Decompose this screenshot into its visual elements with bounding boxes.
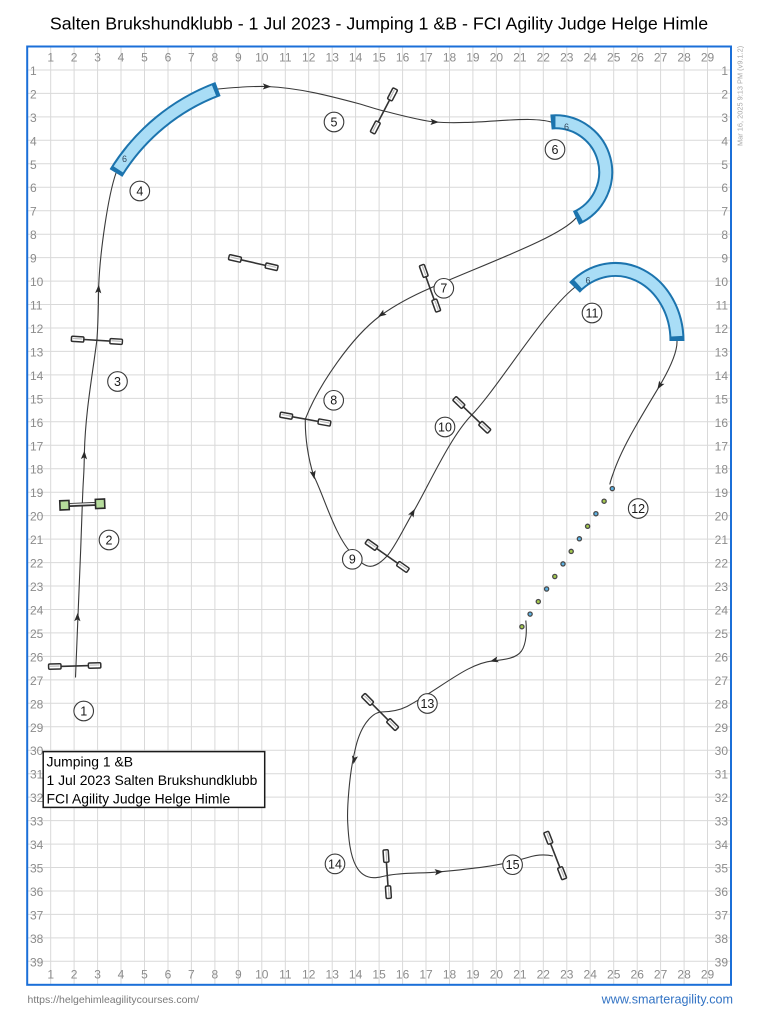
svg-text:4: 4	[721, 134, 728, 148]
svg-text:25: 25	[715, 627, 729, 641]
svg-text:27: 27	[654, 968, 668, 982]
svg-text:19: 19	[466, 51, 480, 65]
svg-text:20: 20	[715, 510, 729, 524]
svg-text:2: 2	[30, 87, 37, 101]
svg-text:23: 23	[715, 580, 729, 594]
svg-text:28: 28	[677, 51, 691, 65]
svg-text:1: 1	[47, 51, 54, 65]
svg-text:17: 17	[419, 968, 433, 982]
svg-text:10: 10	[255, 51, 269, 65]
svg-text:6: 6	[122, 154, 127, 164]
svg-text:18: 18	[715, 463, 729, 477]
svg-text:7: 7	[721, 205, 728, 219]
svg-text:14: 14	[349, 51, 363, 65]
svg-text:35: 35	[30, 862, 44, 876]
svg-text:3: 3	[94, 968, 101, 982]
svg-text:4: 4	[30, 134, 37, 148]
svg-text:1: 1	[80, 704, 87, 718]
svg-text:27: 27	[30, 674, 44, 688]
svg-text:31: 31	[715, 768, 729, 782]
svg-text:3: 3	[30, 111, 37, 125]
svg-text:7: 7	[440, 282, 447, 296]
svg-text:21: 21	[513, 51, 527, 65]
svg-text:3: 3	[114, 375, 121, 389]
svg-text:6: 6	[564, 122, 569, 132]
svg-text:20: 20	[490, 51, 504, 65]
svg-text:Salten Brukshundklubb - 1 Jul: Salten Brukshundklubb - 1 Jul 2023 - Jum…	[50, 14, 708, 34]
svg-text:5: 5	[141, 51, 148, 65]
svg-text:4: 4	[118, 51, 125, 65]
svg-text:6: 6	[721, 181, 728, 195]
svg-text:5: 5	[331, 115, 338, 129]
svg-text:14: 14	[715, 369, 729, 383]
svg-text:21: 21	[30, 533, 44, 547]
svg-text:26: 26	[631, 51, 645, 65]
svg-text:9: 9	[721, 252, 728, 266]
svg-text:18: 18	[30, 463, 44, 477]
svg-text:18: 18	[443, 968, 457, 982]
svg-text:15: 15	[715, 392, 729, 406]
svg-text:26: 26	[715, 650, 729, 664]
svg-text:8: 8	[330, 394, 337, 408]
svg-text:30: 30	[30, 744, 44, 758]
svg-text:www.smarteragility.com: www.smarteragility.com	[601, 993, 733, 1007]
svg-text:17: 17	[419, 51, 433, 65]
svg-text:9: 9	[235, 51, 242, 65]
svg-text:17: 17	[30, 439, 44, 453]
svg-text:23: 23	[560, 968, 574, 982]
svg-text:21: 21	[513, 968, 527, 982]
svg-text:5: 5	[721, 158, 728, 172]
svg-text:23: 23	[560, 51, 574, 65]
svg-text:26: 26	[631, 968, 645, 982]
svg-text:25: 25	[607, 51, 621, 65]
svg-text:24: 24	[715, 604, 729, 618]
svg-text:11: 11	[30, 299, 43, 313]
svg-text:16: 16	[30, 416, 44, 430]
svg-text:21: 21	[715, 533, 729, 547]
svg-text:8: 8	[212, 51, 219, 65]
svg-text:7: 7	[30, 205, 37, 219]
svg-text:22: 22	[30, 557, 44, 571]
svg-text:https://helgehimleagilitycours: https://helgehimleagilitycourses.com/	[28, 994, 200, 1006]
svg-text:12: 12	[302, 51, 316, 65]
svg-text:6: 6	[585, 276, 590, 286]
svg-text:1: 1	[47, 968, 54, 982]
svg-text:11: 11	[586, 306, 599, 320]
svg-text:1 Jul 2023 Salten Brukshundklu: 1 Jul 2023 Salten Brukshundklubb	[47, 772, 258, 788]
svg-text:14: 14	[328, 857, 342, 871]
svg-text:32: 32	[715, 791, 729, 805]
svg-text:15: 15	[372, 968, 386, 982]
svg-text:12: 12	[715, 322, 729, 336]
svg-text:16: 16	[396, 51, 410, 65]
svg-text:34: 34	[715, 838, 729, 852]
svg-text:36: 36	[30, 885, 44, 899]
svg-text:5: 5	[141, 968, 148, 982]
svg-text:18: 18	[443, 51, 457, 65]
svg-text:33: 33	[715, 815, 729, 829]
svg-text:15: 15	[506, 858, 520, 872]
svg-text:13: 13	[326, 968, 340, 982]
svg-text:19: 19	[466, 968, 480, 982]
svg-text:3: 3	[94, 51, 101, 65]
svg-text:2: 2	[106, 533, 113, 547]
svg-text:13: 13	[326, 51, 340, 65]
svg-text:6: 6	[552, 143, 559, 157]
svg-text:38: 38	[715, 932, 729, 946]
svg-text:1: 1	[721, 64, 728, 78]
svg-text:30: 30	[715, 744, 729, 758]
svg-text:5: 5	[30, 158, 37, 172]
svg-text:34: 34	[30, 838, 44, 852]
svg-text:4: 4	[136, 184, 143, 198]
svg-text:15: 15	[372, 51, 386, 65]
svg-text:11: 11	[279, 51, 292, 65]
svg-text:20: 20	[30, 510, 44, 524]
svg-text:23: 23	[30, 580, 44, 594]
svg-text:4: 4	[118, 968, 125, 982]
svg-text:13: 13	[715, 345, 729, 359]
svg-text:8: 8	[30, 228, 37, 242]
svg-text:32: 32	[30, 791, 44, 805]
svg-text:22: 22	[715, 557, 729, 571]
svg-text:12: 12	[302, 968, 316, 982]
svg-text:2: 2	[71, 968, 78, 982]
svg-text:38: 38	[30, 932, 44, 946]
svg-text:8: 8	[721, 228, 728, 242]
svg-text:37: 37	[30, 908, 44, 922]
svg-text:22: 22	[537, 51, 551, 65]
svg-text:FCI Agility Judge Helge Himle: FCI Agility Judge Helge Himle	[47, 791, 231, 807]
svg-text:10: 10	[255, 968, 269, 982]
svg-text:25: 25	[607, 968, 621, 982]
svg-text:6: 6	[165, 51, 172, 65]
svg-text:35: 35	[715, 862, 729, 876]
svg-text:29: 29	[701, 51, 715, 65]
svg-text:12: 12	[631, 502, 645, 516]
svg-text:10: 10	[30, 275, 44, 289]
svg-text:39: 39	[30, 955, 44, 969]
svg-text:19: 19	[715, 486, 729, 500]
svg-text:14: 14	[349, 968, 363, 982]
svg-text:29: 29	[701, 968, 715, 982]
svg-text:15: 15	[30, 392, 44, 406]
svg-text:Mar 16, 2025 9:13 PM (v9.1.2): Mar 16, 2025 9:13 PM (v9.1.2)	[736, 46, 745, 146]
svg-text:9: 9	[349, 553, 356, 567]
svg-text:13: 13	[30, 345, 44, 359]
svg-text:11: 11	[716, 299, 729, 313]
svg-text:6: 6	[30, 181, 37, 195]
svg-text:24: 24	[584, 968, 598, 982]
svg-text:20: 20	[490, 968, 504, 982]
svg-text:28: 28	[677, 968, 691, 982]
svg-text:12: 12	[30, 322, 44, 336]
svg-text:24: 24	[30, 604, 44, 618]
svg-text:36: 36	[715, 885, 729, 899]
svg-text:1: 1	[30, 64, 37, 78]
svg-text:29: 29	[715, 721, 729, 735]
svg-text:19: 19	[30, 486, 44, 500]
svg-text:17: 17	[715, 439, 729, 453]
svg-text:10: 10	[715, 275, 729, 289]
svg-text:2: 2	[71, 51, 78, 65]
svg-text:7: 7	[188, 51, 195, 65]
svg-text:39: 39	[715, 955, 729, 969]
svg-text:13: 13	[420, 697, 434, 711]
svg-text:8: 8	[212, 968, 219, 982]
svg-text:37: 37	[715, 908, 729, 922]
svg-text:24: 24	[584, 51, 598, 65]
svg-text:9: 9	[235, 968, 242, 982]
svg-text:29: 29	[30, 721, 44, 735]
svg-text:28: 28	[715, 697, 729, 711]
svg-text:33: 33	[30, 815, 44, 829]
svg-text:22: 22	[537, 968, 551, 982]
svg-text:6: 6	[165, 968, 172, 982]
svg-text:16: 16	[715, 416, 729, 430]
svg-text:28: 28	[30, 697, 44, 711]
svg-text:16: 16	[396, 968, 410, 982]
svg-text:31: 31	[30, 768, 44, 782]
svg-text:7: 7	[188, 968, 195, 982]
svg-text:11: 11	[279, 968, 292, 982]
svg-text:25: 25	[30, 627, 44, 641]
svg-text:2: 2	[721, 87, 728, 101]
svg-text:27: 27	[654, 51, 668, 65]
svg-text:3: 3	[721, 111, 728, 125]
svg-text:9: 9	[30, 252, 37, 266]
svg-text:Jumping 1 &B: Jumping 1 &B	[47, 754, 133, 770]
svg-text:10: 10	[438, 420, 452, 434]
svg-text:27: 27	[715, 674, 729, 688]
svg-text:26: 26	[30, 650, 44, 664]
svg-text:14: 14	[30, 369, 44, 383]
